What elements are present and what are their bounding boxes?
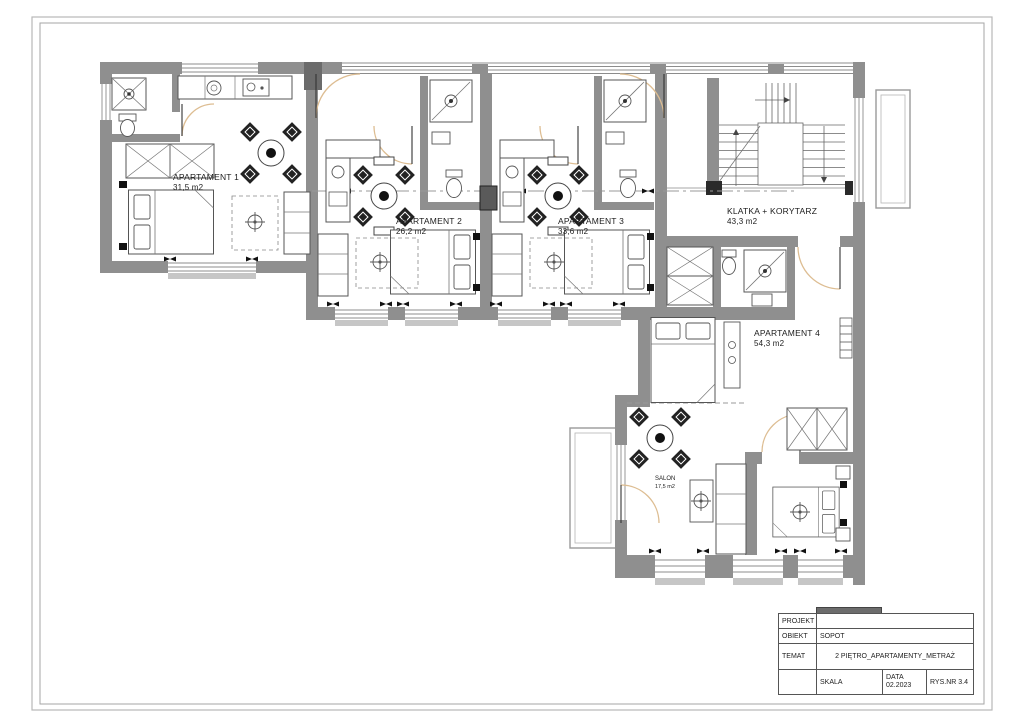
rys-nr: RYS.NR 3.4 xyxy=(927,670,973,694)
room-area-apartament-1: 31,5 m2 xyxy=(173,183,204,192)
room-label-apartament-2: APARTAMENT 2 xyxy=(396,216,462,226)
staircase xyxy=(667,83,853,195)
reference-lines xyxy=(312,189,795,404)
temat-label: TEMAT xyxy=(779,644,817,669)
room-area-apartament-4: 54,3 m2 xyxy=(754,339,785,348)
data-cell: DATA 02.2023 xyxy=(883,670,927,694)
empty-cell xyxy=(779,670,817,694)
skala-label: SKALA xyxy=(817,670,883,694)
room-label-apartament-1: APARTAMENT 1 xyxy=(173,172,239,182)
apartment2-furniture xyxy=(318,80,497,296)
bedroom-furniture xyxy=(773,408,850,541)
temat-value: 2 PIĘTRO_APARTAMENTY_METRAŻ xyxy=(817,644,973,669)
data-value: 02.2023 xyxy=(886,682,911,690)
room-area-klatka: 43,3 m2 xyxy=(727,217,758,226)
salon-furniture xyxy=(629,407,746,554)
walls xyxy=(100,62,865,585)
projekt-label: PROJEKT xyxy=(779,614,817,628)
room-area-apartament-3: 33,6 m2 xyxy=(558,227,589,236)
title-block: PROJEKT OBIEKT SOPOT TEMAT 2 PIĘTRO_APAR… xyxy=(778,611,974,695)
room-label-salon: SALON xyxy=(655,476,675,482)
obiekt-value: SOPOT xyxy=(817,629,973,643)
projekt-value xyxy=(817,614,973,628)
drawing-sheet: APARTAMENT 1 31,5 m2 APARTAMENT 2 26,2 m… xyxy=(0,0,1024,724)
room-area-salon: 17,5 m2 xyxy=(655,484,675,490)
apartment4-furniture xyxy=(651,247,852,403)
room-label-apartament-4: APARTAMENT 4 xyxy=(754,328,820,338)
room-label-klatka: KLATKA + KORYTARZ xyxy=(727,206,817,216)
apartment3-furniture xyxy=(492,80,654,296)
apartment1-furniture xyxy=(112,76,310,254)
obiekt-label: OBIEKT xyxy=(779,629,817,643)
room-label-apartament-3: APARTAMENT 3 xyxy=(558,216,624,226)
data-label: DATA xyxy=(886,674,904,682)
room-labels: APARTAMENT 1 31,5 m2 APARTAMENT 2 26,2 m… xyxy=(173,172,820,490)
room-area-apartament-2: 26,2 m2 xyxy=(396,227,427,236)
